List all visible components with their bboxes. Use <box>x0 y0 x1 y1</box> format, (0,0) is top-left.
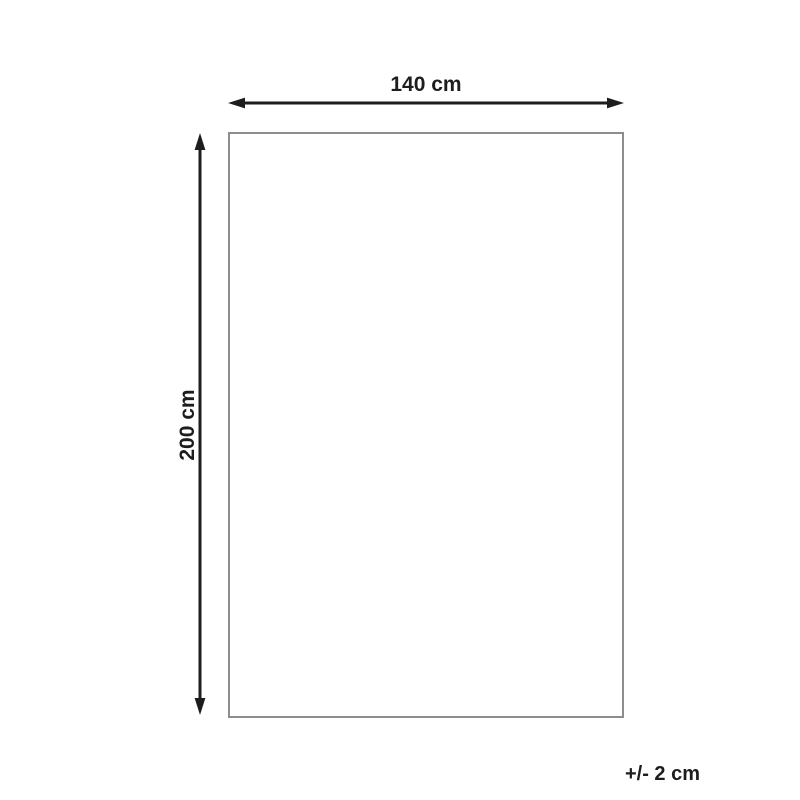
width-dimension-label: 140 cm <box>228 74 624 96</box>
height-arrow-icon <box>192 133 208 715</box>
width-arrow-icon <box>228 95 624 111</box>
tolerance-label: +/- 2 cm <box>560 763 700 785</box>
dimension-diagram: 140 cm 200 cm +/- 2 cm <box>0 0 800 800</box>
product-outline <box>228 132 624 718</box>
